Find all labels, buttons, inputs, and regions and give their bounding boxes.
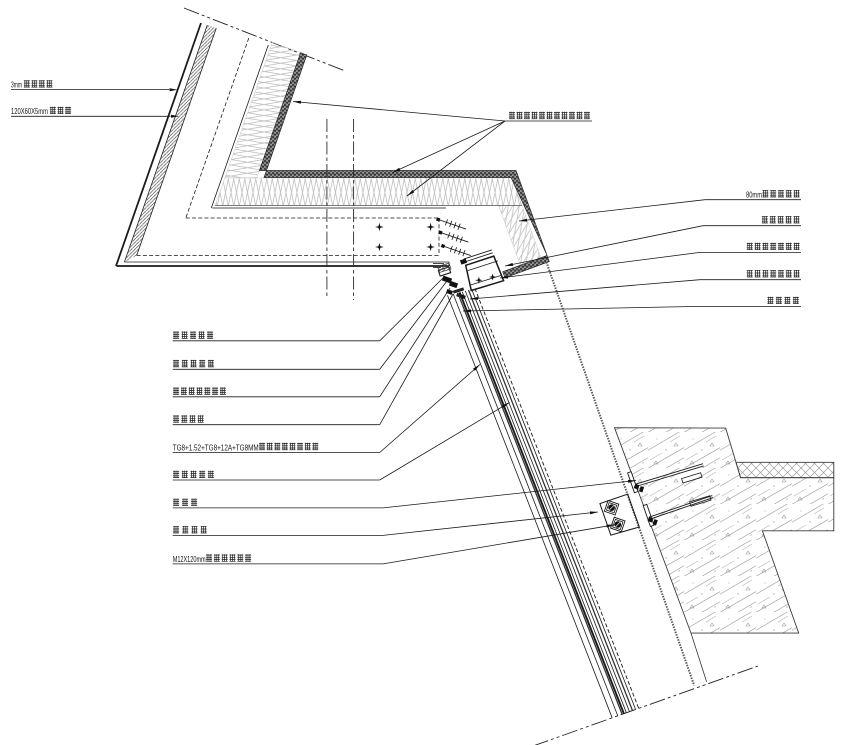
svg-text:80mm: 80mm (746, 191, 762, 200)
svg-text:120X60X5mm: 120X60X5mm (11, 107, 48, 116)
svg-text:M12X120mm: M12X120mm (173, 555, 206, 564)
svg-text:3mm: 3mm (11, 81, 22, 90)
svg-text:TG8+1.52+TG8+12A+TG8MM: TG8+1.52+TG8+12A+TG8MM (173, 443, 259, 452)
